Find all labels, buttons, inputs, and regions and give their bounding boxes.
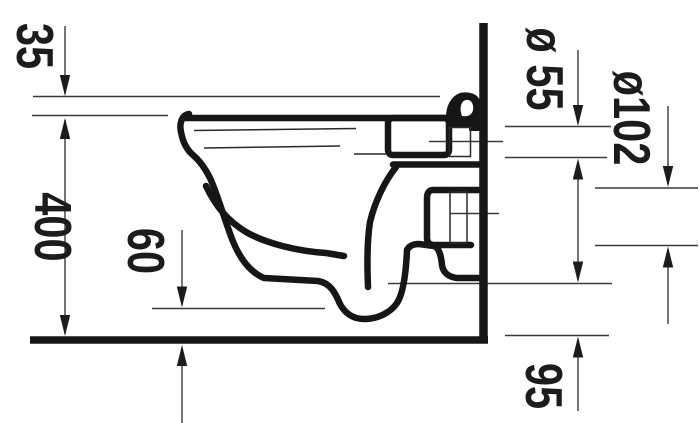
- dimension-label-95: 95: [515, 363, 574, 409]
- arrow-down-dia102: [663, 166, 673, 187]
- dimension-label-35: 35: [6, 23, 65, 69]
- arrow-up-95: [573, 337, 583, 358]
- dimension-label-60: 60: [117, 228, 176, 274]
- seat-lid-line: [194, 129, 356, 131]
- arrow-up-dia55: [573, 159, 583, 180]
- rim-underside-line: [204, 146, 340, 148]
- toilet-outline: [180, 114, 483, 319]
- dimension-lines: [32, 26, 698, 423]
- arrow-up-dia102: [663, 247, 673, 268]
- flush-housing: [388, 118, 449, 155]
- flush-spigot-hook: [447, 93, 480, 130]
- toilet-elevation-svg: 35 400 60 ø 55 ø102 95: [0, 0, 700, 423]
- arrow-down-400: [60, 315, 70, 336]
- arrow-down-95: [573, 262, 583, 283]
- bowl-inner-back: [367, 167, 396, 287]
- dimension-label-dia102: ø102: [603, 71, 662, 166]
- arrow-up-60: [177, 345, 187, 366]
- technical-drawing: 35 400 60 ø 55 ø102 95: [0, 0, 700, 423]
- dimension-label-dia55: ø 55: [516, 27, 575, 110]
- arrow-up-400: [60, 118, 70, 139]
- bowl-inner-front: [206, 186, 344, 256]
- outlet-pipe-stub: [450, 192, 467, 243]
- dimension-label-400: 400: [24, 192, 83, 261]
- arrow-down-60: [177, 287, 187, 308]
- arrow-down-35: [60, 75, 70, 96]
- outlet-pipe: [427, 190, 482, 245]
- dimension-labels: 35 400 60 ø 55 ø102 95: [6, 23, 662, 409]
